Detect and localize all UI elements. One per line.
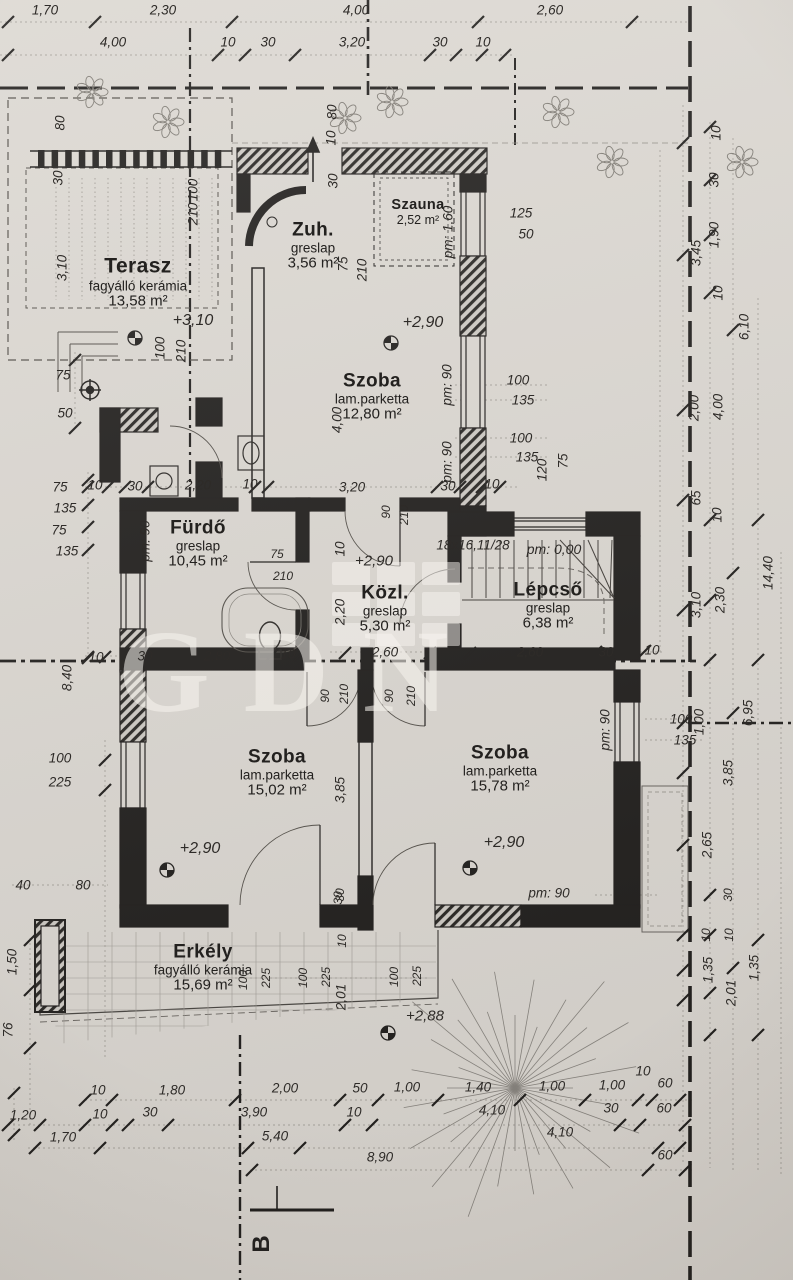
dim-label: 2,30 (713, 587, 727, 613)
dim-label: 80 (53, 115, 67, 130)
dim-label: 75 (55, 368, 70, 382)
dim-label: 4,00 (343, 3, 369, 17)
dim-label: 30 (142, 1105, 157, 1119)
dim-label: 3,10 (689, 592, 703, 618)
dim-label: 135 (674, 733, 697, 747)
dim-label: 100 (153, 337, 167, 360)
dim-label: 1,20 (10, 1108, 36, 1122)
dim-label: 10 (280, 647, 295, 661)
dim-label: 80 (325, 104, 339, 119)
dim-label: 100 (237, 970, 249, 990)
dim-label: 10 (484, 477, 499, 491)
dim-label: pm: 90 (138, 520, 152, 561)
room-label-szoba-jobb: Szobalam.parketta15,78 m² (463, 742, 537, 795)
room-label-zuh: Zuh.greslap3,56 m² (288, 219, 339, 272)
dim-label: 75 (52, 480, 67, 494)
dim-label: +2,88 (406, 1009, 444, 1024)
dim-label: 10 (88, 650, 103, 664)
floorplan-page: GDN B Teraszfagyálló kerámia13,58 m²Zuh.… (0, 0, 793, 1280)
dim-label: 8,90 (367, 1150, 393, 1164)
dim-label: 225 (411, 966, 423, 986)
dim-label: 2,00 (272, 1081, 298, 1095)
dim-label: 8,40 (60, 665, 74, 691)
dim-label: 50 (57, 406, 72, 420)
dim-label: 100 (507, 373, 530, 387)
dim-label: 100 (49, 751, 72, 765)
dim-label: 90 (383, 689, 395, 702)
dim-label: 210 (174, 340, 188, 363)
dim-label: 210 (398, 505, 410, 525)
dim-label: 10 (336, 934, 348, 947)
dim-label: 3,20 (339, 480, 365, 494)
dim-label: 3,20 (339, 35, 365, 49)
dim-label: 10 (710, 507, 724, 522)
dim-label: 10 (242, 477, 257, 491)
dim-label: 1,00 (692, 709, 706, 735)
room-label-furdo: Fürdőgreslap10,45 m² (168, 517, 227, 570)
dim-label: 4,00 (100, 35, 126, 49)
dim-label: 14,40 (761, 556, 775, 590)
room-label-lepcso: Lépcsőgreslap6,38 m² (514, 579, 583, 632)
dim-label: 210 (186, 203, 200, 226)
dim-label: pm: 90 (440, 441, 454, 482)
dim-label: 120 (535, 459, 549, 482)
dim-label: 40 (15, 878, 30, 892)
dim-label: 100 (297, 968, 309, 988)
dim-label: 30 (51, 170, 65, 185)
dim-label: 6,95 (741, 700, 755, 726)
dim-label: 2,00 (687, 395, 701, 421)
dim-label: 125 (510, 206, 533, 220)
room-label-szoba-bal: Szobalam.parketta15,02 m² (240, 746, 314, 799)
dim-label: 65 (689, 490, 703, 505)
room-label-kozl: Közl.greslap5,30 m² (360, 582, 411, 635)
dim-label: 3,85 (721, 760, 735, 786)
dim-label: 100 (670, 712, 693, 726)
dim-label: 210 (273, 570, 293, 582)
dim-label: 30 (432, 35, 447, 49)
dim-label: 6,10 (737, 314, 751, 340)
dim-label: 75 (556, 453, 570, 468)
dim-label: pm: 0,00 (527, 542, 581, 556)
dim-label: 10 (220, 35, 235, 49)
dim-label: 1,35 (747, 955, 761, 981)
dim-label: 3,45 (689, 240, 703, 266)
dim-label: 50 (518, 227, 533, 241)
dim-label: 30 (707, 172, 721, 187)
dim-label: 10 (644, 643, 659, 657)
dim-label: pm: 90 (598, 709, 612, 750)
dim-label: 90 (380, 505, 392, 518)
dim-label: +2,90 (484, 835, 524, 851)
dim-label: 90 (319, 689, 331, 702)
dim-label: 30 (440, 479, 455, 493)
dim-label: 1,40 (465, 1080, 491, 1094)
dim-label: +3,10 (173, 313, 213, 329)
dim-label: 5,40 (262, 1129, 288, 1143)
dim-label: +2,90 (403, 315, 443, 331)
dim-label: 4,10 (547, 1125, 573, 1139)
dim-label: 18x16,11/28 (436, 538, 509, 552)
dim-label: 30 (260, 35, 275, 49)
dim-label: 10 (723, 928, 735, 941)
dim-label: 75 (51, 523, 66, 537)
dim-label: 10 (346, 1105, 361, 1119)
dim-label: 10 (92, 1107, 107, 1121)
dim-label: 2,20 (185, 478, 211, 492)
dim-label: 10 (709, 125, 723, 140)
dim-label: 10 (711, 285, 725, 300)
dim-label: 4,00 (711, 394, 725, 420)
dim-label: 76 (1, 1022, 15, 1037)
dim-label: 1,70 (32, 3, 58, 17)
dim-label: 2,60 (372, 645, 398, 659)
dim-label: 10 (324, 130, 338, 145)
dim-label: 225 (49, 775, 72, 789)
dim-label: 4,10 (479, 1103, 505, 1117)
dim-label: 1,00 (539, 1079, 565, 1093)
dim-label: 100 (510, 431, 533, 445)
dim-label: 60 (657, 1076, 672, 1090)
dim-label: 30 (332, 891, 344, 904)
dim-label: 2,30 (150, 3, 176, 17)
dim-label: 210 (338, 684, 350, 704)
dim-label: 210 (355, 259, 369, 282)
dim-label: pm: 90 (528, 886, 569, 900)
room-label-terasz: Teraszfagyálló kerámia13,58 m² (89, 254, 187, 309)
dim-label: 30 (127, 479, 142, 493)
dim-label: 30 (137, 649, 152, 663)
dim-label: 10 (700, 928, 712, 941)
dim-label: 60 (656, 1101, 671, 1115)
dim-label: 10 (475, 35, 490, 49)
dim-label: 75 (270, 548, 283, 560)
dim-label: 1,80 (159, 1083, 185, 1097)
dim-label: 210 (405, 686, 417, 706)
dim-label: 135 (54, 501, 77, 515)
room-label-szauna: Szauna2,52 m² (391, 197, 444, 227)
dim-label: 2,65 (700, 832, 714, 858)
dim-label: 3,90 (241, 1105, 267, 1119)
dim-label: pm: 1,60 (441, 206, 455, 259)
dim-label: 80 (75, 878, 90, 892)
dim-label: 30 (326, 173, 340, 188)
dim-label: 100 (186, 179, 200, 202)
dim-label: 2,60 (537, 3, 563, 17)
dim-label: 60 (657, 1148, 672, 1162)
dim-label: 4,00 (330, 407, 344, 433)
dim-label: 1,70 (50, 1130, 76, 1144)
dim-label: +2,90 (355, 554, 393, 569)
dim-label: 10 (635, 1064, 650, 1078)
terrace (8, 98, 688, 401)
dim-label: 1,00 (394, 1080, 420, 1094)
dim-label: 3,85 (333, 777, 347, 803)
dim-label: 1,00 (599, 1078, 625, 1092)
dim-label: 30 (598, 645, 613, 659)
dim-label: +2,90 (180, 841, 220, 857)
dim-label: 100 (388, 967, 400, 987)
dim-label: pm: 90 (440, 364, 454, 405)
dim-label: 75 (336, 256, 350, 271)
dim-label: 3,10 (55, 255, 69, 281)
dim-label: 2,01 (334, 984, 348, 1010)
dim-label: 2,01 (724, 980, 738, 1006)
dim-label: 10 (87, 478, 102, 492)
dim-label: 225 (320, 967, 332, 987)
dim-label: 50 (352, 1081, 367, 1095)
section-marker-b: B (248, 1235, 276, 1252)
dim-label: 10 (333, 541, 347, 556)
dim-label: 135 (512, 393, 535, 407)
dim-label: 2,80 (204, 649, 230, 663)
dim-label: 30 (722, 888, 734, 901)
room-label-szoba-felso: Szobalam.parketta12,80 m² (335, 370, 409, 423)
dim-label: 225 (260, 968, 272, 988)
dim-label: 30 (603, 1101, 618, 1115)
dim-label: 10 (90, 1083, 105, 1097)
dim-label: 1,90 (707, 222, 721, 248)
dim-label: 2,20 (333, 599, 347, 625)
dim-label: 1,50 (5, 949, 19, 975)
dim-label: 2,60 (517, 645, 543, 659)
dim-label: 1,35 (701, 957, 715, 983)
washer-icon (150, 466, 178, 496)
dim-label: 135 (56, 544, 79, 558)
